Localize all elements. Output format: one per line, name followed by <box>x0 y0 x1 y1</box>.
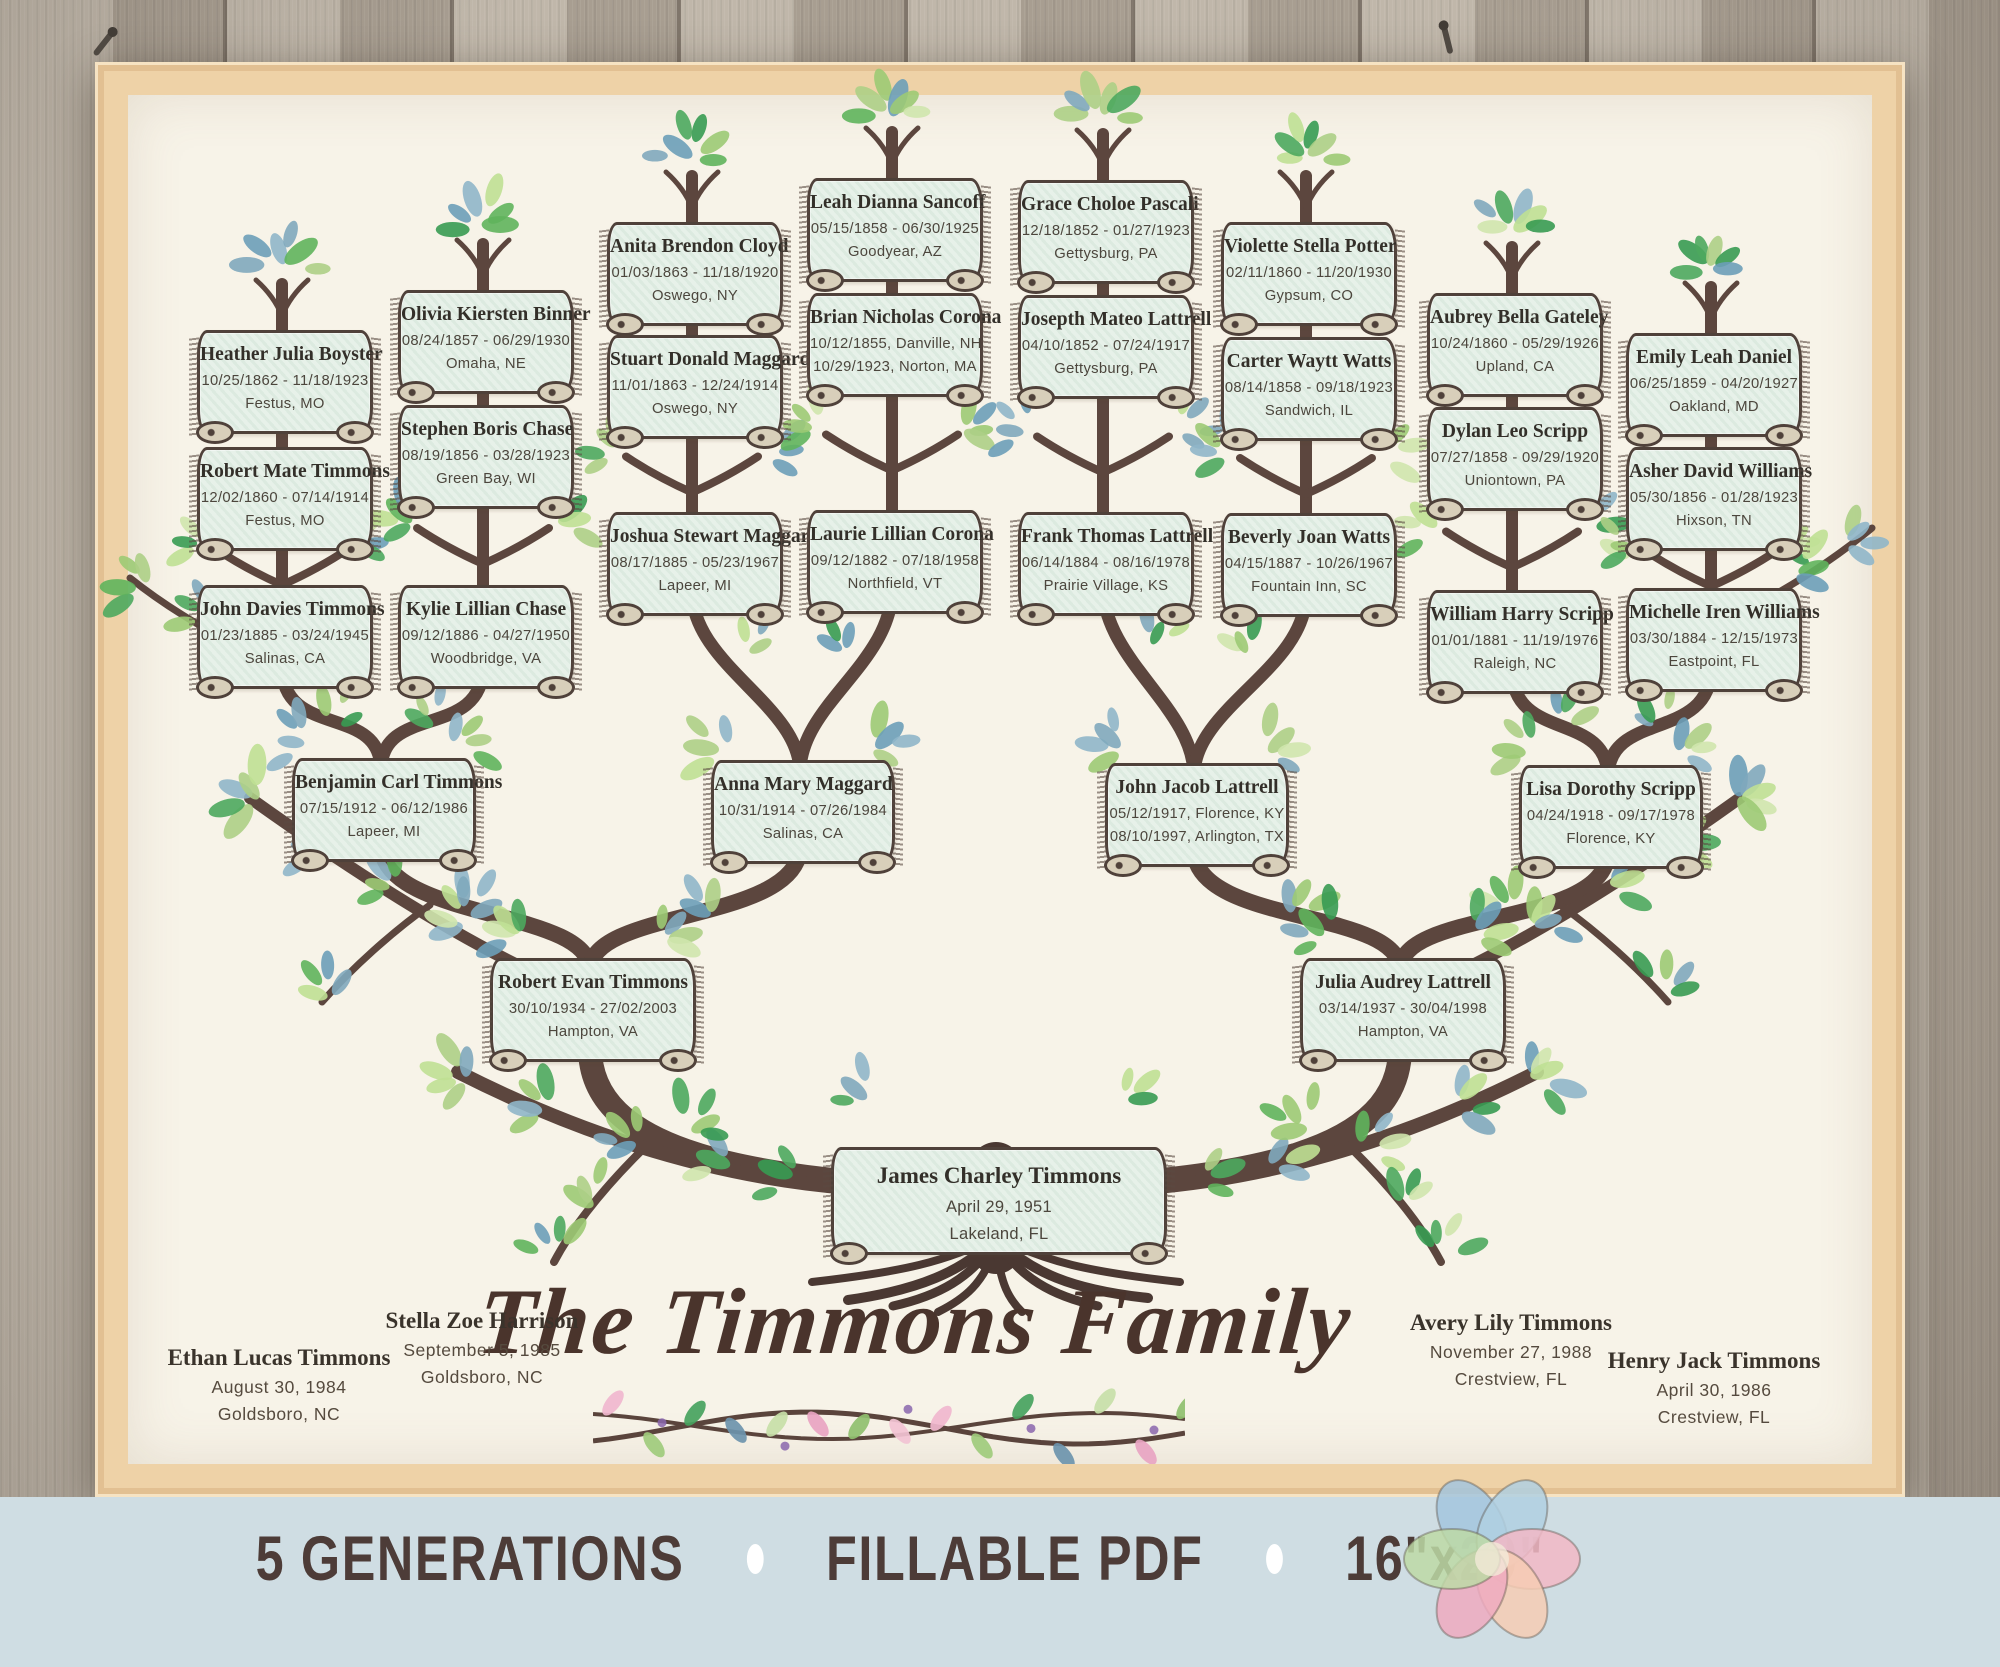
person-detail: 08/14/1858 - 09/18/1923 <box>1224 380 1394 396</box>
scroll-curl-icon <box>946 269 984 292</box>
person-name: John Jacob Lattrell <box>1108 777 1286 799</box>
person-banner: John Jacob Lattrell05/12/1917, Florence,… <box>1105 763 1289 867</box>
person-banner: Leah Dianna Sancoff05/15/1858 - 06/30/19… <box>807 178 983 282</box>
person-detail: 06/14/1884 - 08/16/1978 <box>1021 555 1191 571</box>
scroll-curl-icon <box>439 849 477 872</box>
scroll-curl-icon <box>710 851 748 874</box>
person-name: Heather Julia Boyster <box>200 344 370 366</box>
person-name: James Charley Timmons <box>834 1163 1164 1189</box>
scroll-curl-icon <box>1518 856 1556 879</box>
child-entry: Stella Zoe HarrisonSeptember 5, 1985Gold… <box>332 1308 632 1388</box>
scroll-curl-icon <box>537 381 575 404</box>
person-name: Henry Jack Timmons <box>1564 1348 1864 1374</box>
footer-dot-icon <box>1266 1544 1283 1574</box>
person-detail: Goldsboro, NC <box>332 1367 632 1388</box>
scroll-curl-icon <box>946 601 984 624</box>
person-detail: 05/12/1917, Florence, KY <box>1108 806 1286 822</box>
scroll-curl-icon <box>1666 856 1704 879</box>
person-detail: 01/03/1863 - 11/18/1920 <box>610 265 780 281</box>
product-image: The Timmons Family Heather Julia Boyster… <box>0 0 2000 1667</box>
person-name: Robert Evan Timmons <box>493 972 693 994</box>
person-banner: Lisa Dorothy Scripp04/24/1918 - 09/17/19… <box>1519 765 1703 869</box>
person-banner: Aubrey Bella Gateley10/24/1860 - 05/29/1… <box>1427 293 1603 397</box>
person-banner: Kylie Lillian Chase09/12/1886 - 04/27/19… <box>398 585 574 689</box>
person-detail: Goodyear, AZ <box>810 244 980 260</box>
person-banner: Michelle Iren Williams03/30/1884 - 12/15… <box>1626 588 1802 692</box>
person-detail: 01/23/1885 - 03/24/1945 <box>200 628 370 644</box>
person-detail: 05/30/1856 - 01/28/1923 <box>1629 490 1799 506</box>
scroll-curl-icon <box>336 676 374 699</box>
person-detail: Florence, KY <box>1522 831 1700 847</box>
scroll-curl-icon <box>397 381 435 404</box>
person-detail: Hixson, TN <box>1629 513 1799 529</box>
person-detail: Sandwich, IL <box>1224 403 1394 419</box>
scroll-curl-icon <box>196 676 234 699</box>
person-detail: 11/01/1863 - 12/24/1914 <box>610 378 780 394</box>
person-banner: Carter Waytt Watts08/14/1858 - 09/18/192… <box>1221 337 1397 441</box>
scroll-curl-icon <box>1765 538 1803 561</box>
scroll-curl-icon <box>1625 538 1663 561</box>
person-detail: Oakland, MD <box>1629 399 1799 415</box>
scroll-curl-icon <box>196 421 234 444</box>
person-detail: Lakeland, FL <box>834 1225 1164 1243</box>
scroll-curl-icon <box>1299 1049 1337 1072</box>
person-detail: Northfield, VT <box>810 576 980 592</box>
person-detail: 03/30/1884 - 12/15/1973 <box>1629 631 1799 647</box>
scroll-curl-icon <box>1765 424 1803 447</box>
person-detail: Gettysburg, PA <box>1021 246 1191 262</box>
person-name: Michelle Iren Williams <box>1629 602 1799 624</box>
person-detail: 09/12/1882 - 07/18/1958 <box>810 553 980 569</box>
person-banner: Dylan Leo Scripp07/27/1858 - 09/29/1920U… <box>1427 407 1603 511</box>
person-banner: Stuart Donald Maggard11/01/1863 - 12/24/… <box>607 335 783 439</box>
floral-vine-icon <box>593 1386 1185 1464</box>
scroll-curl-icon <box>1360 313 1398 336</box>
person-detail: April 30, 1986 <box>1564 1380 1864 1401</box>
person-detail: 04/24/1918 - 09/17/1978 <box>1522 808 1700 824</box>
scroll-curl-icon <box>606 426 644 449</box>
person-detail: 01/01/1881 - 11/19/1976 <box>1430 633 1600 649</box>
person-detail: Oswego, NY <box>610 288 780 304</box>
scroll-curl-icon <box>336 421 374 444</box>
person-name: Leah Dianna Sancoff <box>810 192 980 214</box>
scroll-curl-icon <box>291 849 329 872</box>
person-detail: Woodbridge, VA <box>401 651 571 667</box>
person-name: Asher David Williams <box>1629 461 1799 483</box>
person-name: Emily Leah Daniel <box>1629 347 1799 369</box>
person-name: William Harry Scripp <box>1430 604 1600 626</box>
scroll-curl-icon <box>659 1049 697 1072</box>
person-banner: Joshua Stewart Maggard08/17/1885 - 05/23… <box>607 512 783 616</box>
person-detail: Gypsum, CO <box>1224 288 1394 304</box>
person-name: Violette Stella Potter <box>1224 236 1394 258</box>
person-name: Lisa Dorothy Scripp <box>1522 779 1700 801</box>
scroll-curl-icon <box>806 601 844 624</box>
scroll-curl-icon <box>196 538 234 561</box>
scroll-curl-icon <box>1220 313 1258 336</box>
scroll-curl-icon <box>1566 681 1604 704</box>
person-banner: Violette Stella Potter02/11/1860 - 11/20… <box>1221 222 1397 326</box>
person-banner: Anita Brendon Cloyd01/03/1863 - 11/18/19… <box>607 222 783 326</box>
scroll-curl-icon <box>746 426 784 449</box>
footer-text: 5 GENERATIONS FILLABLE PDF 16"x20" <box>256 1523 1545 1595</box>
footer-item-fillable: FILLABLE PDF <box>826 1523 1204 1595</box>
scroll-curl-icon <box>1017 603 1055 626</box>
scroll-curl-icon <box>1426 384 1464 407</box>
person-detail: Omaha, NE <box>401 356 571 372</box>
person-detail: Salinas, CA <box>714 826 892 842</box>
person-detail: 08/19/1856 - 03/28/1923 <box>401 448 571 464</box>
scroll-curl-icon <box>830 1242 868 1265</box>
person-banner: Grace Choloe Pascali12/18/1852 - 01/27/1… <box>1018 180 1194 284</box>
person-banner: Laurie Lillian Corona09/12/1882 - 07/18/… <box>807 510 983 614</box>
person-name: Stella Zoe Harrison <box>332 1308 632 1334</box>
scroll-curl-icon <box>1157 386 1195 409</box>
person-name: Dylan Leo Scripp <box>1430 421 1600 443</box>
person-name: Anna Mary Maggard <box>714 774 892 796</box>
scroll-curl-icon <box>806 269 844 292</box>
person-detail: 06/25/1859 - 04/20/1927 <box>1629 376 1799 392</box>
person-banner: Robert Evan Timmons30/10/1934 - 27/02/20… <box>490 958 696 1062</box>
scroll-curl-icon <box>1220 428 1258 451</box>
person-detail: 02/11/1860 - 11/20/1930 <box>1224 265 1394 281</box>
person-name: Frank Thomas Lattrell <box>1021 526 1191 548</box>
scroll-curl-icon <box>1017 271 1055 294</box>
person-name: Laurie Lillian Corona <box>810 524 980 546</box>
person-name: Avery Lily Timmons <box>1361 1310 1661 1336</box>
scroll-curl-icon <box>336 538 374 561</box>
person-detail: Fountain Inn, SC <box>1224 579 1394 595</box>
person-detail: September 5, 1985 <box>332 1340 632 1361</box>
person-banner: John Davies Timmons01/23/1885 - 03/24/19… <box>197 585 373 689</box>
child-entry: Henry Jack TimmonsApril 30, 1986Crestvie… <box>1564 1348 1864 1428</box>
scroll-curl-icon <box>397 496 435 519</box>
person-name: Stuart Donald Maggard <box>610 349 780 371</box>
person-detail: 10/31/1914 - 07/26/1984 <box>714 803 892 819</box>
scroll-curl-icon <box>1469 1049 1507 1072</box>
person-banner: Heather Julia Boyster10/25/1862 - 11/18/… <box>197 330 373 434</box>
person-banner: Frank Thomas Lattrell06/14/1884 - 08/16/… <box>1018 512 1194 616</box>
person-detail: Gettysburg, PA <box>1021 361 1191 377</box>
footer-band: 5 GENERATIONS FILLABLE PDF 16"x20" <box>0 1497 2000 1667</box>
person-detail: 30/10/1934 - 27/02/2003 <box>493 1001 693 1017</box>
person-detail: Raleigh, NC <box>1430 656 1600 672</box>
person-detail: Hampton, VA <box>493 1024 693 1040</box>
scroll-curl-icon <box>1566 498 1604 521</box>
scroll-curl-icon <box>1360 604 1398 627</box>
person-detail: Uniontown, PA <box>1430 473 1600 489</box>
person-detail: 10/12/1855, Danville, NH <box>810 336 980 352</box>
scroll-curl-icon <box>1104 854 1142 877</box>
person-detail: Upland, CA <box>1430 359 1600 375</box>
flower-logo-icon <box>1396 1460 1588 1658</box>
person-detail: 07/15/1912 - 06/12/1986 <box>295 801 473 817</box>
person-detail: 08/10/1997, Arlington, TX <box>1108 829 1286 845</box>
scroll-curl-icon <box>1157 271 1195 294</box>
scroll-curl-icon <box>397 676 435 699</box>
person-detail: 04/10/1852 - 07/24/1917 <box>1021 338 1191 354</box>
scroll-curl-icon <box>606 313 644 336</box>
person-detail: 04/15/1887 - 10/26/1967 <box>1224 556 1394 572</box>
person-name: Josepth Mateo Lattrell <box>1021 309 1191 331</box>
scroll-curl-icon <box>1566 384 1604 407</box>
person-name: Robert Mate Timmons <box>200 461 370 483</box>
person-detail: Eastpoint, FL <box>1629 654 1799 670</box>
scroll-curl-icon <box>1157 603 1195 626</box>
person-name: Anita Brendon Cloyd <box>610 236 780 258</box>
person-detail: 07/27/1858 - 09/29/1920 <box>1430 450 1600 466</box>
person-detail: Crestview, FL <box>1564 1407 1864 1428</box>
person-detail: 09/12/1886 - 04/27/1950 <box>401 628 571 644</box>
scroll-curl-icon <box>1625 424 1663 447</box>
person-detail: Festus, MO <box>200 396 370 412</box>
scroll-curl-icon <box>1252 854 1290 877</box>
scroll-curl-icon <box>1220 604 1258 627</box>
scroll-curl-icon <box>606 603 644 626</box>
person-detail: 08/24/1857 - 06/29/1930 <box>401 333 571 349</box>
person-detail: Festus, MO <box>200 513 370 529</box>
scroll-curl-icon <box>806 384 844 407</box>
person-name: Joshua Stewart Maggard <box>610 526 780 548</box>
person-banner: Olivia Kiersten Binner08/24/1857 - 06/29… <box>398 290 574 394</box>
scroll-curl-icon <box>858 851 896 874</box>
scroll-curl-icon <box>489 1049 527 1072</box>
person-detail: 08/17/1885 - 05/23/1967 <box>610 555 780 571</box>
person-banner: Beverly Joan Watts04/15/1887 - 10/26/196… <box>1221 513 1397 617</box>
scroll-curl-icon <box>746 313 784 336</box>
person-detail: 10/29/1923, Norton, MA <box>810 359 980 375</box>
scroll-curl-icon <box>537 496 575 519</box>
scroll-curl-icon <box>1360 428 1398 451</box>
scroll-curl-icon <box>1426 681 1464 704</box>
person-name: Benjamin Carl Timmons <box>295 772 473 794</box>
person-banner: Asher David Williams05/30/1856 - 01/28/1… <box>1626 447 1802 551</box>
person-name: Beverly Joan Watts <box>1224 527 1394 549</box>
person-detail: Lapeer, MI <box>610 578 780 594</box>
person-name: Carter Waytt Watts <box>1224 351 1394 373</box>
person-banner: Josepth Mateo Lattrell04/10/1852 - 07/24… <box>1018 295 1194 399</box>
person-banner: James Charley TimmonsApril 29, 1951Lakel… <box>831 1147 1167 1255</box>
scroll-curl-icon <box>746 603 784 626</box>
person-detail: 10/24/1860 - 05/29/1926 <box>1430 336 1600 352</box>
person-banner: Julia Audrey Lattrell03/14/1937 - 30/04/… <box>1300 958 1506 1062</box>
tree-labels-layer: The Timmons Family Heather Julia Boyster… <box>0 0 2000 1667</box>
person-detail: 10/25/1862 - 11/18/1923 <box>200 373 370 389</box>
person-detail: Green Bay, WI <box>401 471 571 487</box>
person-detail: 03/14/1937 - 30/04/1998 <box>1303 1001 1503 1017</box>
person-banner: Robert Mate Timmons12/02/1860 - 07/14/19… <box>197 447 373 551</box>
scroll-curl-icon <box>537 676 575 699</box>
person-name: Aubrey Bella Gateley <box>1430 307 1600 329</box>
person-name: Grace Choloe Pascali <box>1021 194 1191 216</box>
person-banner: William Harry Scripp01/01/1881 - 11/19/1… <box>1427 590 1603 694</box>
scroll-curl-icon <box>946 384 984 407</box>
person-banner: Brian Nicholas Corona10/12/1855, Danvill… <box>807 293 983 397</box>
person-banner: Stephen Boris Chase08/19/1856 - 03/28/19… <box>398 405 574 509</box>
person-name: Brian Nicholas Corona <box>810 307 980 329</box>
person-banner: Benjamin Carl Timmons07/15/1912 - 06/12/… <box>292 758 476 862</box>
footer-dot-icon <box>747 1544 764 1574</box>
scroll-curl-icon <box>1017 386 1055 409</box>
person-name: Olivia Kiersten Binner <box>401 304 571 326</box>
scroll-curl-icon <box>1426 498 1464 521</box>
person-detail: 12/02/1860 - 07/14/1914 <box>200 490 370 506</box>
person-name: John Davies Timmons <box>200 599 370 621</box>
person-name: Kylie Lillian Chase <box>401 599 571 621</box>
person-detail: 12/18/1852 - 01/27/1923 <box>1021 223 1191 239</box>
person-name: Julia Audrey Lattrell <box>1303 972 1503 994</box>
scroll-curl-icon <box>1130 1242 1168 1265</box>
person-detail: Oswego, NY <box>610 401 780 417</box>
person-detail: Hampton, VA <box>1303 1024 1503 1040</box>
person-detail: April 29, 1951 <box>834 1198 1164 1216</box>
person-detail: Goldsboro, NC <box>129 1404 429 1425</box>
person-banner: Emily Leah Daniel06/25/1859 - 04/20/1927… <box>1626 333 1802 437</box>
person-detail: 05/15/1858 - 06/30/1925 <box>810 221 980 237</box>
person-name: Stephen Boris Chase <box>401 419 571 441</box>
person-detail: Lapeer, MI <box>295 824 473 840</box>
person-banner: Anna Mary Maggard10/31/1914 - 07/26/1984… <box>711 760 895 864</box>
person-detail: Prairie Village, KS <box>1021 578 1191 594</box>
scroll-curl-icon <box>1625 679 1663 702</box>
person-detail: Salinas, CA <box>200 651 370 667</box>
scroll-curl-icon <box>1765 679 1803 702</box>
footer-item-generations: 5 GENERATIONS <box>256 1523 685 1595</box>
